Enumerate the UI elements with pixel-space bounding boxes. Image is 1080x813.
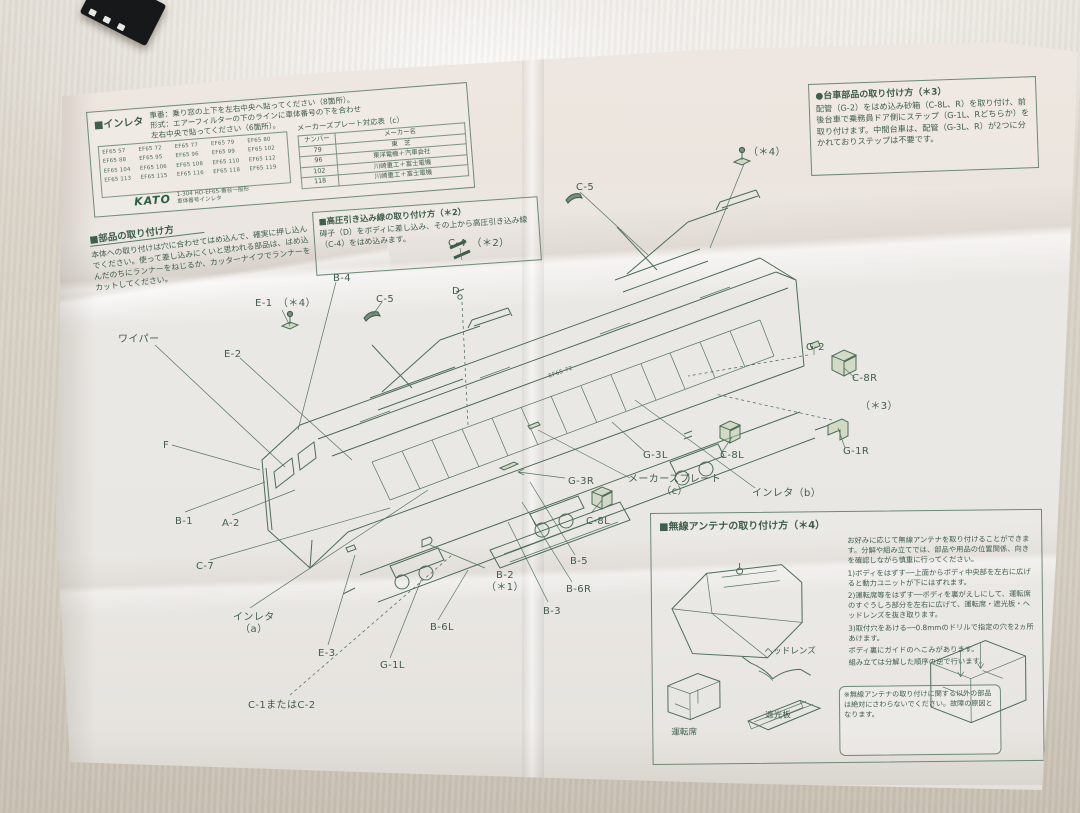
part-label: メーカーズプレート （c）	[628, 474, 721, 497]
part-label: B-3	[543, 606, 561, 618]
part-label: （＊4）	[748, 147, 786, 159]
box-knob	[102, 16, 111, 25]
part-label: C-5	[376, 294, 394, 306]
part-label: B-6R	[566, 584, 591, 596]
part-label: G-3L	[643, 450, 668, 462]
part-label: C-7	[196, 561, 214, 573]
black-model-box	[80, 0, 167, 46]
part-label: B-2 （＊1）	[486, 570, 524, 593]
instruction-sheet: ■インレタ 車番：乗り窓の上下を左右中央へ貼ってください（8箇所）。 形式：エア…	[0, 0, 1080, 813]
part-label: G-1L	[380, 660, 405, 672]
part-label: C-8L	[586, 516, 610, 528]
part-label: C-1またはC-2	[248, 700, 316, 712]
box-knob	[88, 8, 97, 17]
part-label: （＊3）	[860, 401, 898, 413]
part-label: C-8L	[720, 450, 744, 462]
part-label: G-2	[806, 342, 825, 354]
part-label: B-5	[570, 556, 588, 568]
part-label: ワイパー	[118, 334, 159, 346]
part-label: C-5	[576, 182, 594, 194]
part-label: B-4	[333, 273, 351, 285]
shade-label: 遮光板	[765, 709, 791, 721]
part-label: B-6L	[430, 622, 454, 634]
part-label: EF65 72	[548, 365, 574, 380]
part-label: E-1 （＊4）	[255, 298, 316, 310]
part-label: C-8R	[852, 373, 878, 385]
part-label: インレタ （a）	[233, 612, 275, 635]
headlens-label: ヘッドレンズ	[764, 644, 816, 657]
radio-antenna-box: ■無線アンテナの取り付け方（＊4） お好みに応じて無線アンテナを取り付けることが…	[650, 509, 1045, 765]
part-label: C-4 （＊2）	[448, 238, 510, 250]
box-knob	[117, 23, 126, 32]
part-label: E-2	[224, 349, 242, 361]
seat-label: 運転席	[671, 726, 697, 738]
part-label: インレタ（b）	[752, 488, 821, 500]
part-label: F	[163, 440, 169, 452]
part-label: D	[452, 286, 460, 298]
antenna-sketches	[651, 510, 1044, 764]
part-label: E-3	[318, 648, 336, 660]
part-label: G-3R	[568, 476, 594, 488]
part-label: A-2	[222, 518, 240, 530]
part-label: G-1R	[843, 446, 869, 458]
part-label: B-1	[175, 516, 193, 528]
